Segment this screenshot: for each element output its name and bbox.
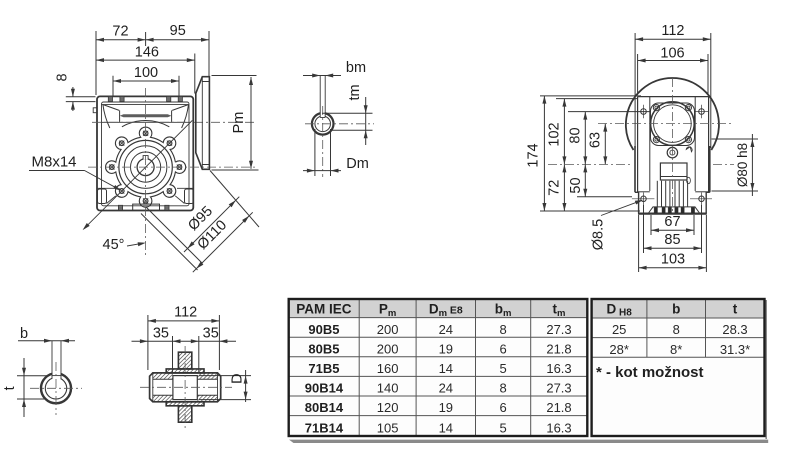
svg-text:5: 5 xyxy=(499,361,506,376)
svg-text:8: 8 xyxy=(673,322,680,337)
svg-text:25: 25 xyxy=(612,322,626,337)
svg-text:19: 19 xyxy=(439,341,453,356)
svg-text:16.3: 16.3 xyxy=(546,421,571,436)
svg-text:174: 174 xyxy=(526,143,542,167)
svg-text:35: 35 xyxy=(153,326,169,342)
svg-text:tm: tm xyxy=(347,84,363,100)
svg-text:21.8: 21.8 xyxy=(546,400,571,415)
svg-text:200: 200 xyxy=(377,341,399,356)
svg-text:67: 67 xyxy=(664,214,680,230)
svg-text:21.8: 21.8 xyxy=(546,341,571,356)
svg-text:Ø80 h8: Ø80 h8 xyxy=(735,143,750,187)
svg-text:146: 146 xyxy=(135,44,159,60)
svg-text:M8x14: M8x14 xyxy=(32,153,77,170)
svg-text:t: t xyxy=(733,302,738,317)
svg-text:80B5: 80B5 xyxy=(308,341,339,356)
svg-text:95: 95 xyxy=(170,23,186,39)
svg-text:PAM IEC: PAM IEC xyxy=(296,302,352,317)
svg-text:Dm: Dm xyxy=(346,156,369,172)
svg-text:6: 6 xyxy=(499,341,506,356)
svg-text:140: 140 xyxy=(377,381,399,396)
svg-text:8: 8 xyxy=(499,322,506,337)
svg-text:t: t xyxy=(2,386,18,390)
svg-text:D: D xyxy=(230,373,246,383)
svg-text:8: 8 xyxy=(499,381,506,396)
svg-text:19: 19 xyxy=(439,400,453,415)
svg-text:71B14: 71B14 xyxy=(305,421,344,436)
svg-text:200: 200 xyxy=(377,322,399,337)
svg-text:90B5: 90B5 xyxy=(308,322,339,337)
svg-text:14: 14 xyxy=(439,421,453,436)
svg-text:8*: 8* xyxy=(670,342,682,357)
svg-text:80: 80 xyxy=(568,127,584,143)
svg-text:102: 102 xyxy=(547,122,563,146)
svg-text:5: 5 xyxy=(499,421,506,436)
svg-text:160: 160 xyxy=(377,361,399,376)
svg-text:112: 112 xyxy=(174,305,197,321)
svg-text:100: 100 xyxy=(134,65,158,81)
svg-text:85: 85 xyxy=(664,232,680,248)
svg-text:90B14: 90B14 xyxy=(305,381,344,396)
svg-text:63: 63 xyxy=(588,132,604,148)
svg-text:120: 120 xyxy=(377,400,399,415)
svg-text:* - kot možnost: * - kot možnost xyxy=(596,364,704,381)
svg-text:35: 35 xyxy=(203,326,219,342)
svg-text:bm: bm xyxy=(346,60,366,76)
svg-text:72: 72 xyxy=(547,180,563,196)
svg-text:71B5: 71B5 xyxy=(308,361,339,376)
svg-text:28*: 28* xyxy=(609,342,629,357)
svg-text:27.3: 27.3 xyxy=(546,381,571,396)
svg-text:103: 103 xyxy=(661,251,685,267)
svg-text:80B14: 80B14 xyxy=(305,400,344,415)
svg-text:105: 105 xyxy=(377,421,399,436)
svg-text:14: 14 xyxy=(439,361,453,376)
svg-text:28.3: 28.3 xyxy=(722,322,747,337)
svg-text:b: b xyxy=(20,326,28,342)
svg-text:27.3: 27.3 xyxy=(546,322,571,337)
svg-text:112: 112 xyxy=(661,23,684,39)
svg-text:16.3: 16.3 xyxy=(546,361,571,376)
svg-text:6: 6 xyxy=(499,400,506,415)
svg-text:31.3*: 31.3* xyxy=(720,342,750,357)
svg-text:24: 24 xyxy=(439,381,453,396)
svg-text:Pm: Pm xyxy=(231,112,247,134)
svg-text:b: b xyxy=(672,302,680,317)
svg-text:8: 8 xyxy=(55,73,71,81)
svg-text:50: 50 xyxy=(568,177,584,193)
svg-text:24: 24 xyxy=(439,322,453,337)
svg-text:45°: 45° xyxy=(103,237,125,253)
svg-text:Ø8.5: Ø8.5 xyxy=(591,219,607,250)
svg-text:106: 106 xyxy=(660,46,684,62)
svg-text:72: 72 xyxy=(112,24,128,40)
